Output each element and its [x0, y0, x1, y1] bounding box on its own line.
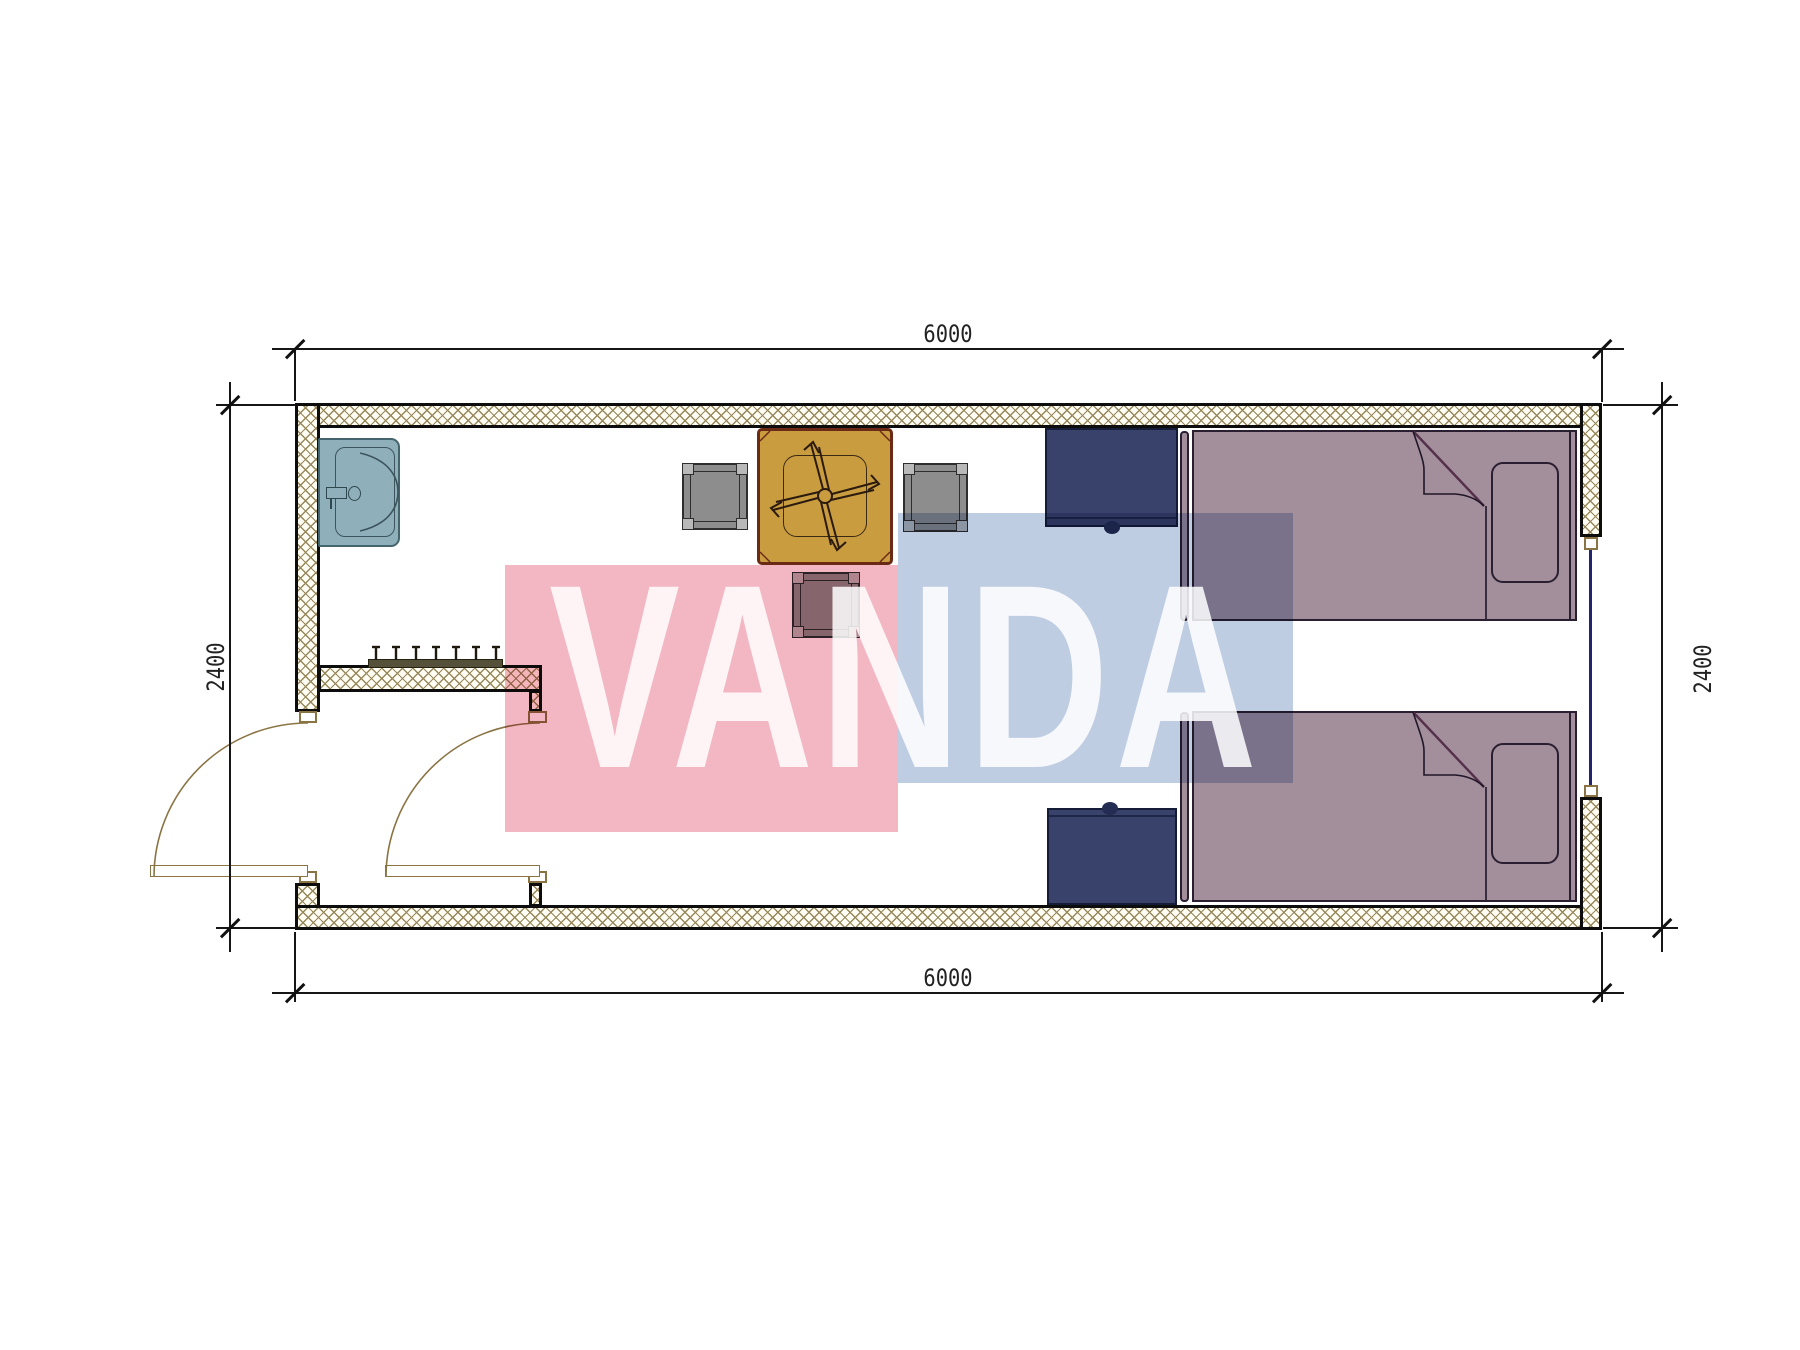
bed2-headboard-line	[1569, 713, 1571, 900]
bed1-headboard-line	[1569, 432, 1571, 619]
bed1-pillow	[1491, 462, 1559, 583]
dim-right-ext-top	[1603, 404, 1678, 406]
window-jamb-bottom	[1584, 785, 1598, 797]
fan-plate	[783, 455, 867, 537]
wall-top	[295, 403, 1602, 428]
chair-rail	[690, 471, 740, 522]
dim-bottom-label: 6000	[906, 964, 991, 992]
coat-rack-bar	[368, 659, 503, 668]
floor-plan-canvas: 6000 6000 2400 2400 VANDA	[0, 0, 1800, 1350]
wall-right-upper	[1580, 403, 1602, 537]
dim-top-line	[272, 348, 1624, 350]
faucet-icon	[326, 487, 347, 499]
chair-left	[682, 463, 748, 530]
dim-top-ext-right	[1601, 349, 1603, 402]
dim-top-label: 6000	[906, 320, 991, 348]
watermark-pink-rect	[505, 565, 898, 832]
window-glazing-line	[1589, 550, 1592, 785]
nightstand-bottom	[1047, 808, 1177, 905]
door1-swing-arc	[154, 723, 308, 877]
nightstand-bottom-knob	[1102, 802, 1118, 815]
door2-leaf	[385, 865, 540, 877]
wall-bottom	[295, 905, 1602, 930]
wall-bottom-door-stub	[529, 883, 542, 907]
door1-jamb-top	[299, 711, 317, 723]
wall-right-lower	[1580, 797, 1602, 930]
wall-left	[295, 403, 320, 712]
dim-top-ext-left	[294, 349, 296, 401]
watermark-blue-rect	[898, 513, 1293, 783]
window-jamb-top	[1584, 537, 1598, 550]
dim-bottom-line	[272, 992, 1624, 994]
dim-right-ext-bottom	[1603, 927, 1678, 929]
dim-right-label: 2400	[1689, 627, 1717, 712]
faucet-knob	[348, 486, 361, 501]
bed2-pillow	[1491, 743, 1559, 864]
dim-right-line	[1661, 382, 1663, 952]
dim-left-label: 2400	[202, 625, 230, 710]
